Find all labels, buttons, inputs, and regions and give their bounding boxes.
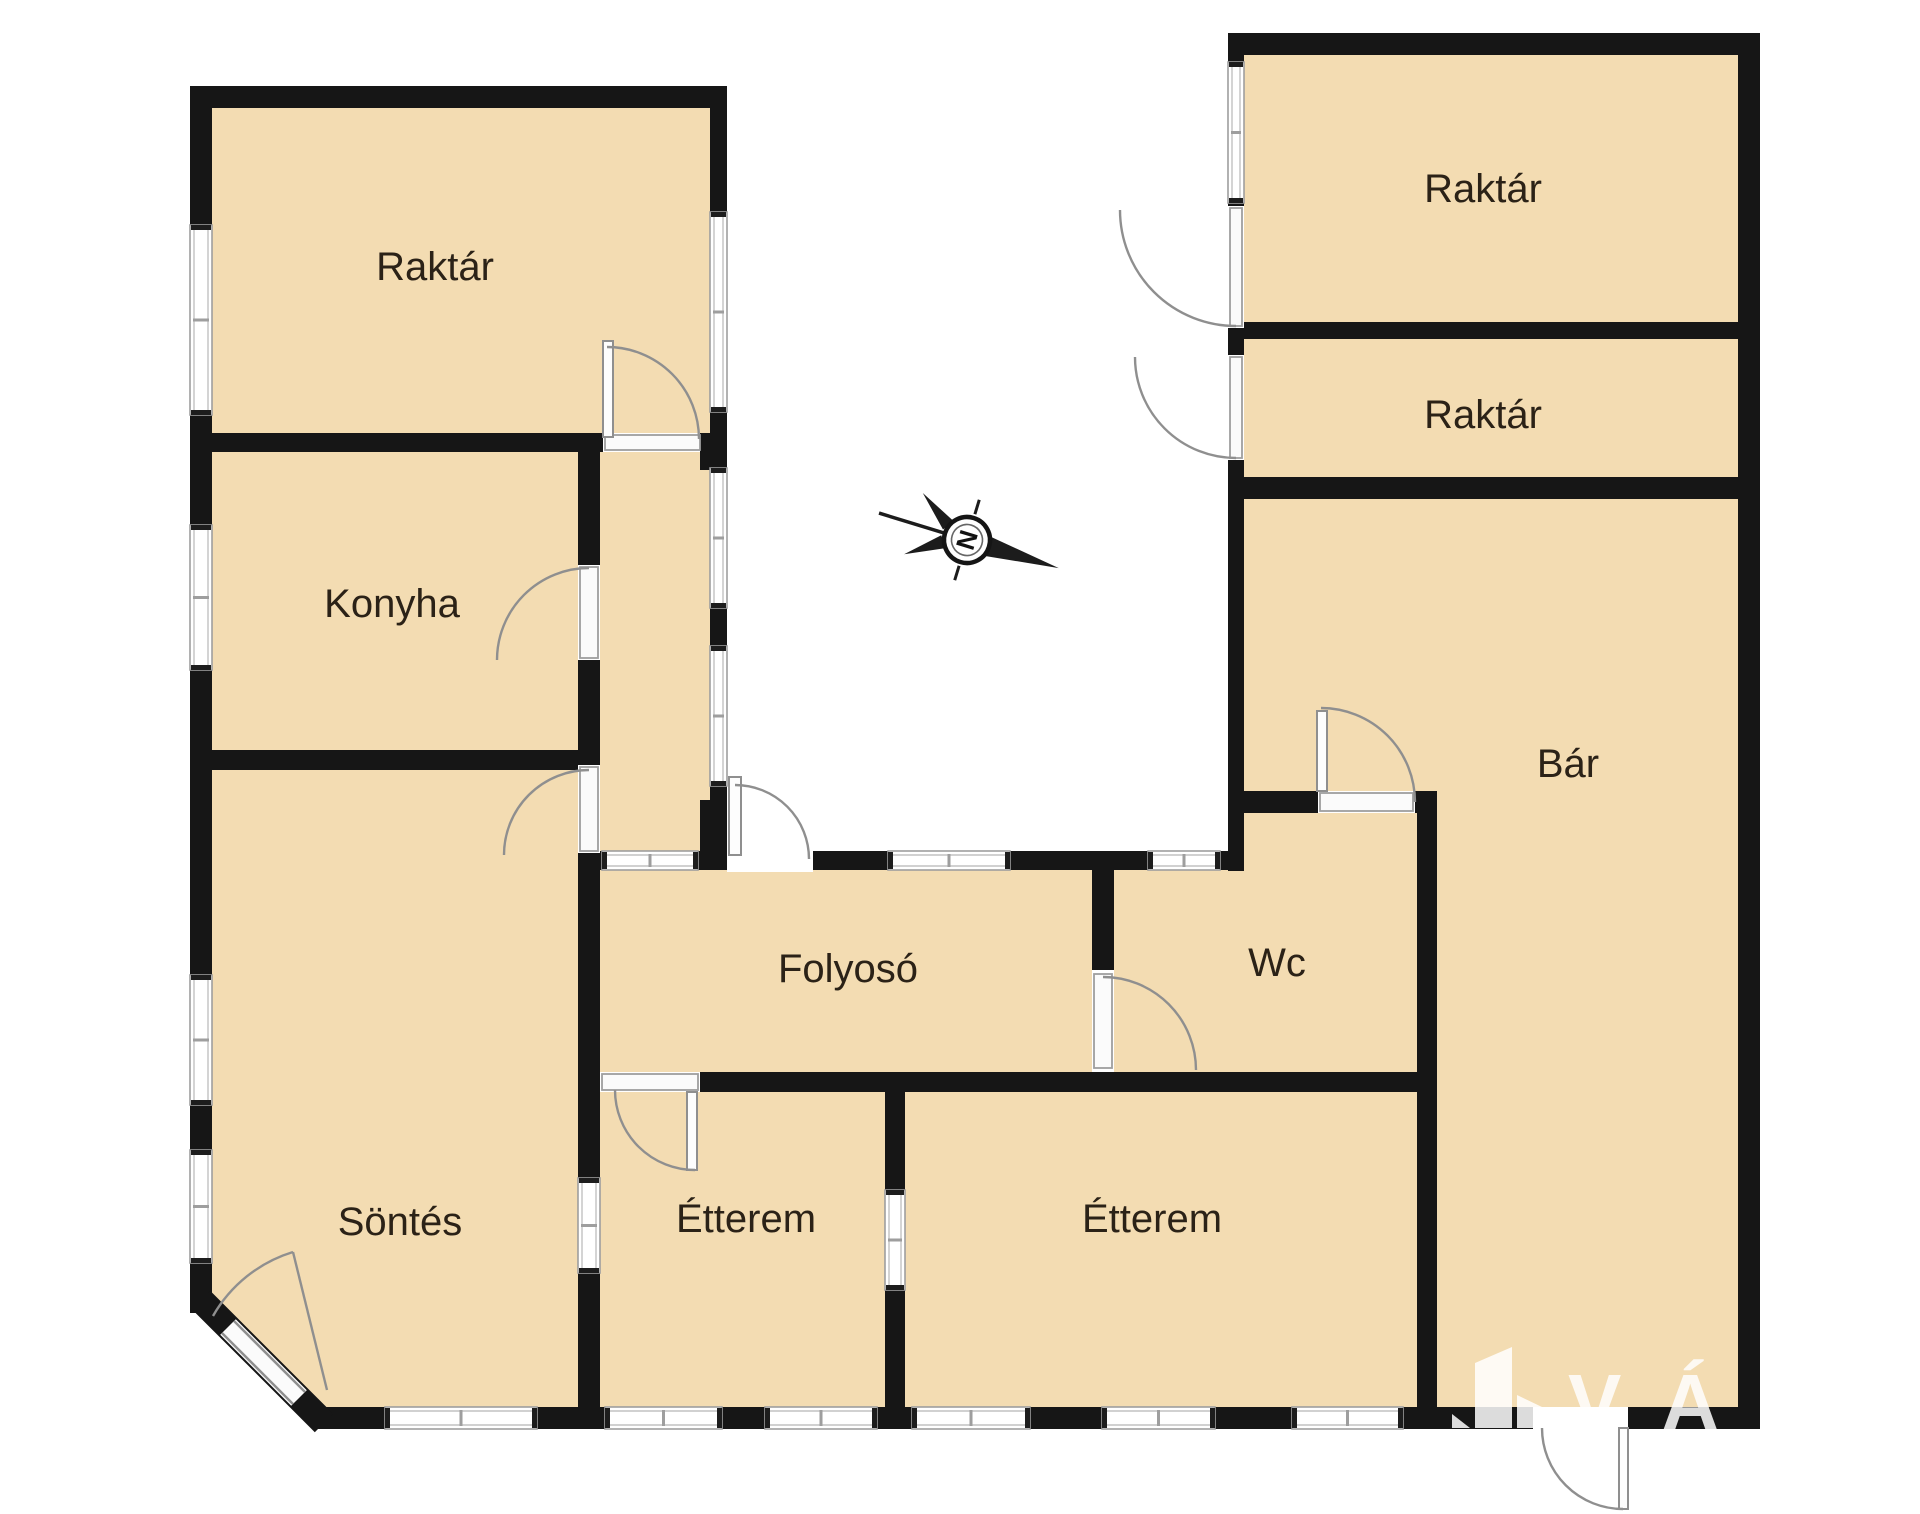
window-cap: [711, 781, 726, 786]
door-leaf: [687, 1092, 697, 1170]
window: [710, 468, 727, 608]
wall-segment: [1242, 477, 1738, 499]
door-leaf: [1317, 711, 1327, 791]
window: [1228, 62, 1244, 203]
window-cap: [605, 1408, 610, 1428]
window-cap: [532, 1408, 537, 1428]
door-threshold: [580, 567, 598, 658]
floor-plan-page: RaktárKonyhaSöntésFolyosóÉtteremÉtteremW…: [0, 0, 1920, 1514]
window-mid-tick: [193, 1205, 209, 1208]
wall-segment: [1228, 33, 1760, 55]
window-cap: [1398, 1408, 1403, 1428]
window-mid-tick: [948, 854, 951, 867]
window-mid-tick: [820, 1410, 823, 1426]
door-leaf: [729, 777, 741, 855]
window-cap: [765, 1408, 770, 1428]
window-mid-tick: [713, 715, 724, 718]
compass-tick-bottom: [955, 566, 959, 580]
window-mid-tick: [1346, 1410, 1349, 1426]
window: [912, 1407, 1030, 1429]
wall-segment: [1417, 791, 1437, 1429]
window: [605, 1407, 722, 1429]
window-cap: [1229, 198, 1243, 203]
window-mid-tick: [1157, 1410, 1160, 1426]
wall-segment: [190, 86, 727, 108]
window: [190, 975, 212, 1105]
window-cap: [579, 1178, 599, 1183]
window-mid-tick: [713, 311, 724, 314]
window-mid-tick: [1183, 854, 1186, 867]
wall-segment: [1242, 322, 1738, 339]
window-cap: [385, 1408, 390, 1428]
window-cap: [191, 525, 211, 530]
window-cap: [711, 407, 726, 412]
window-cap: [191, 1100, 211, 1105]
window-cap: [1148, 852, 1153, 869]
window-mid-tick: [662, 1410, 665, 1426]
window-cap: [711, 603, 726, 608]
door-swing-arc: [735, 785, 809, 859]
window-cap: [1215, 852, 1220, 869]
window: [578, 1178, 600, 1273]
window-cap: [888, 852, 893, 869]
window-cap: [191, 1258, 211, 1263]
window-cap: [711, 212, 726, 217]
window-cap: [602, 852, 607, 869]
window-mid-tick: [460, 1410, 463, 1426]
window-cap: [191, 665, 211, 670]
window-cap: [191, 410, 211, 415]
window-cap: [1210, 1408, 1215, 1428]
door-swing-arc: [1135, 357, 1236, 458]
window-cap: [191, 975, 211, 980]
room-label-konyha: Konyha: [324, 582, 460, 626]
window-cap: [717, 1408, 722, 1428]
window-cap: [579, 1268, 599, 1273]
window: [602, 851, 698, 870]
window-mid-tick: [713, 537, 724, 540]
door-threshold: [602, 1074, 698, 1090]
wall-segment: [1738, 33, 1760, 1429]
wall-segment: [578, 1072, 1437, 1092]
door-threshold: [605, 435, 700, 450]
window: [385, 1407, 537, 1429]
window: [190, 525, 212, 670]
compass-tick-top: [975, 500, 979, 514]
window-cap: [1229, 62, 1243, 67]
compass-arrow: [985, 537, 1062, 578]
room-label-etterem-west: Étterem: [676, 1196, 816, 1241]
window-mid-tick: [193, 1039, 209, 1042]
window: [710, 646, 727, 786]
window-mid-tick: [193, 596, 209, 599]
door-threshold: [580, 767, 598, 851]
room-label-bar: Bár: [1537, 742, 1599, 786]
door-threshold: [1094, 974, 1112, 1068]
window: [710, 212, 727, 412]
window-mid-tick: [1231, 131, 1241, 134]
window-mid-tick: [888, 1239, 902, 1242]
room-fill-sontes-column: [190, 750, 578, 1429]
floor-plan: RaktárKonyhaSöntésFolyosóÉtteremÉtteremW…: [0, 0, 1920, 1514]
door-swing-arc: [1120, 210, 1236, 326]
window-cap: [1005, 852, 1010, 869]
room-label-folyoso: Folyosó: [778, 947, 918, 991]
window-mid-tick: [193, 319, 209, 322]
window-cap: [872, 1408, 877, 1428]
door-threshold: [1230, 208, 1242, 326]
window-cap: [711, 646, 726, 651]
room-label-raktar-top-left: Raktár: [376, 245, 494, 289]
room-label-raktar-right-lower: Raktár: [1424, 393, 1542, 437]
room-label-etterem-east: Étterem: [1082, 1196, 1222, 1241]
compass-icon: N: [867, 473, 1071, 608]
window-cap: [886, 1190, 904, 1195]
window: [1148, 851, 1220, 870]
window: [885, 1190, 905, 1290]
window-mid-tick: [970, 1410, 973, 1426]
wall-segment: [700, 800, 727, 853]
window-cap: [1292, 1408, 1297, 1428]
window-cap: [191, 225, 211, 230]
window-mid-tick: [581, 1224, 597, 1227]
room-label-sontes: Söntés: [338, 1200, 463, 1244]
door-threshold: [1230, 357, 1242, 458]
window: [1292, 1407, 1403, 1429]
room-label-raktar-right-upper: Raktár: [1424, 167, 1542, 211]
window: [1102, 1407, 1215, 1429]
window-cap: [886, 1285, 904, 1290]
room-fill-right-building: [1228, 33, 1760, 1429]
door-threshold: [1320, 793, 1413, 811]
watermark-text: VÁRO: [1568, 1358, 1920, 1447]
window: [190, 1150, 212, 1263]
window-cap: [711, 468, 726, 473]
window: [190, 225, 212, 415]
window: [765, 1407, 877, 1429]
window-mid-tick: [649, 854, 652, 867]
wall-segment: [190, 750, 578, 770]
window: [888, 851, 1010, 870]
window-cap: [693, 852, 698, 869]
window-cap: [1025, 1408, 1030, 1428]
window-cap: [912, 1408, 917, 1428]
door-leaf: [603, 341, 613, 437]
window-cap: [1102, 1408, 1107, 1428]
window-cap: [191, 1150, 211, 1155]
room-label-wc: Wc: [1248, 941, 1306, 985]
